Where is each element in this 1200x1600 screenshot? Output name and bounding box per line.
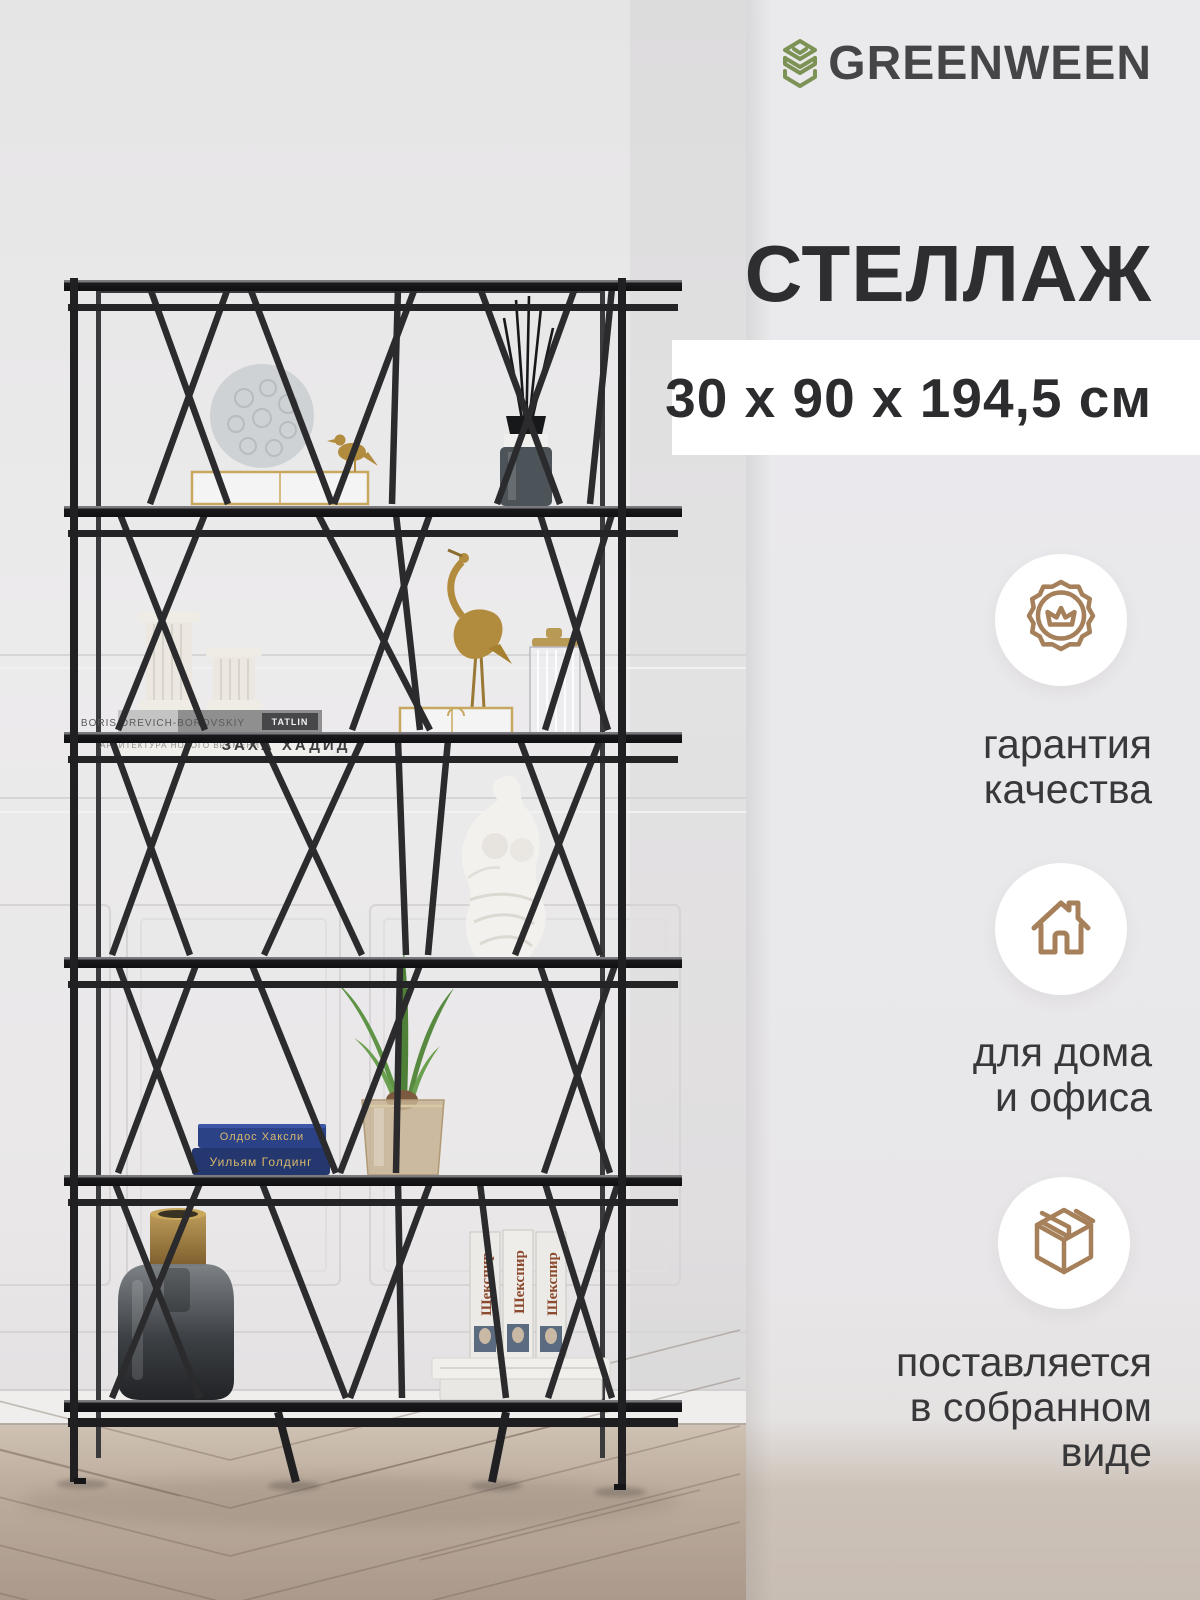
book-publisher-text: TATLIN	[272, 717, 309, 727]
shakespeare-spine-text: Шекспир	[512, 1250, 528, 1314]
package-box-icon	[1016, 1193, 1112, 1294]
blue-books: Олдос Хаксли Уильям Голдинг	[192, 1124, 330, 1175]
house-icon	[1015, 881, 1107, 978]
feature-badge-home	[995, 863, 1127, 995]
spine-portraits	[474, 1324, 562, 1352]
shakespeare-books: Шекспир Шекспир Шекспир	[470, 1230, 566, 1358]
medal-crown-icon	[1015, 572, 1107, 669]
feature-line: поставляется	[896, 1340, 1152, 1385]
feature-line: качества	[983, 767, 1152, 812]
shelving-scene: BORIS DREVICH-BOROVSKIY TATLIN АРХИТЕКТУ…	[0, 0, 746, 1600]
wall-shade	[630, 0, 746, 1425]
feature-line: гарантия	[983, 722, 1152, 767]
blue-book-bottom-text: Уильям Голдинг	[210, 1155, 313, 1169]
product-title: СТЕЛЛАЖ	[745, 228, 1152, 320]
greenween-logo-icon	[779, 38, 821, 90]
book-author-text: BORIS DREVICH-BOROVSKIY	[81, 718, 245, 729]
brand-logo: GREENWEEN	[779, 36, 1152, 91]
feature-badge-quality	[995, 554, 1127, 686]
feature-line: для дома	[973, 1030, 1152, 1075]
product-photo: BORIS DREVICH-BOROVSKIY TATLIN АРХИТЕКТУ…	[0, 0, 746, 1600]
feature-line: виде	[896, 1430, 1152, 1475]
feature-line: в собранном	[896, 1385, 1152, 1430]
feature-text-home: для дома и офиса	[973, 1030, 1152, 1120]
feature-text-quality: гарантия качества	[983, 722, 1152, 812]
brand-name: GREENWEEN	[828, 36, 1152, 91]
feature-text-assembled: поставляется в собранном виде	[896, 1340, 1152, 1475]
blue-book-top-text: Олдос Хаксли	[220, 1131, 304, 1143]
shelf-shadow	[20, 1476, 680, 1528]
dimensions-value: 30 x 90 x 194,5 см	[665, 366, 1152, 430]
fluted-column-short	[206, 648, 262, 710]
product-card: BORIS DREVICH-BOROVSKIY TATLIN АРХИТЕКТУ…	[0, 0, 1200, 1600]
feature-line: и офиса	[973, 1075, 1152, 1120]
feature-badge-assembled	[998, 1177, 1130, 1309]
shakespeare-spine-text: Шекспир	[545, 1252, 561, 1316]
dimensions-box: 30 x 90 x 194,5 см	[672, 340, 1200, 455]
white-book-stack	[432, 1358, 610, 1400]
